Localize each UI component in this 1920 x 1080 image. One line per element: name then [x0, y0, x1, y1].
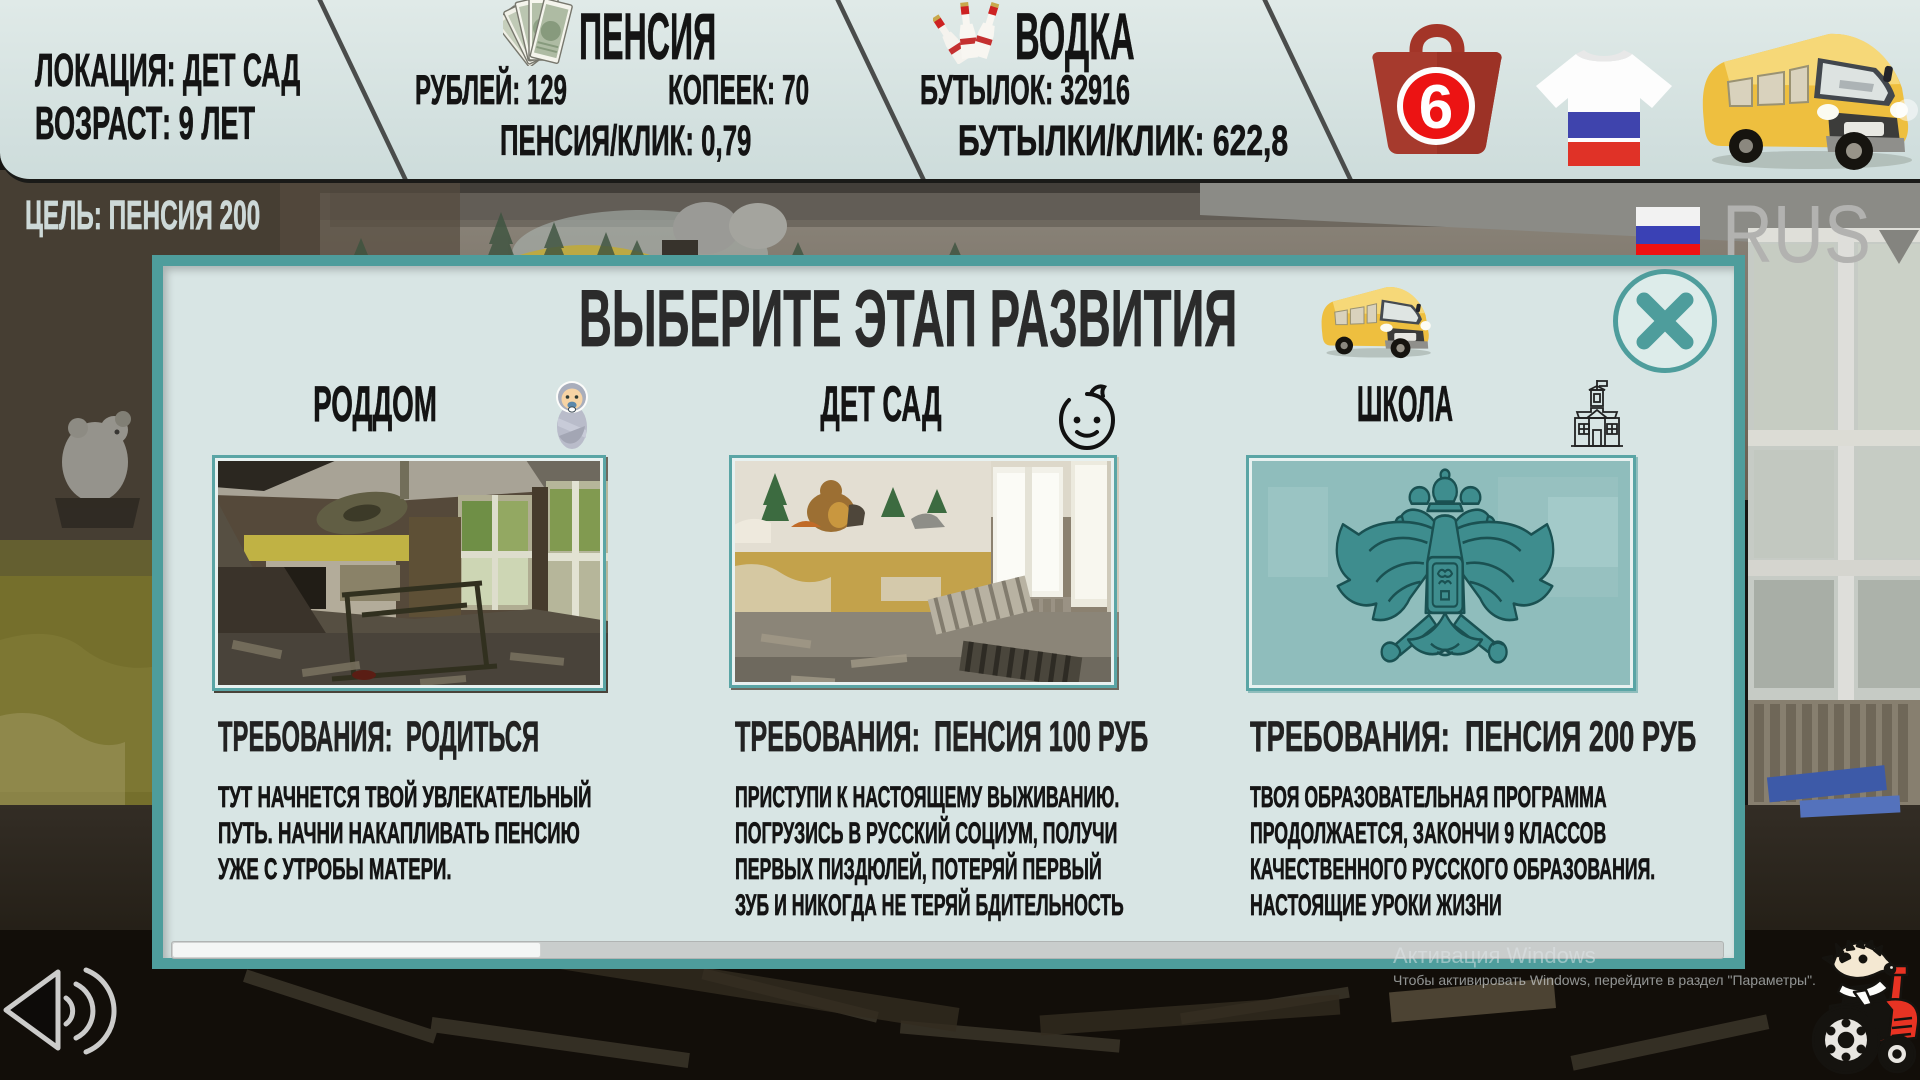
- svg-text:6: 6: [1419, 73, 1453, 142]
